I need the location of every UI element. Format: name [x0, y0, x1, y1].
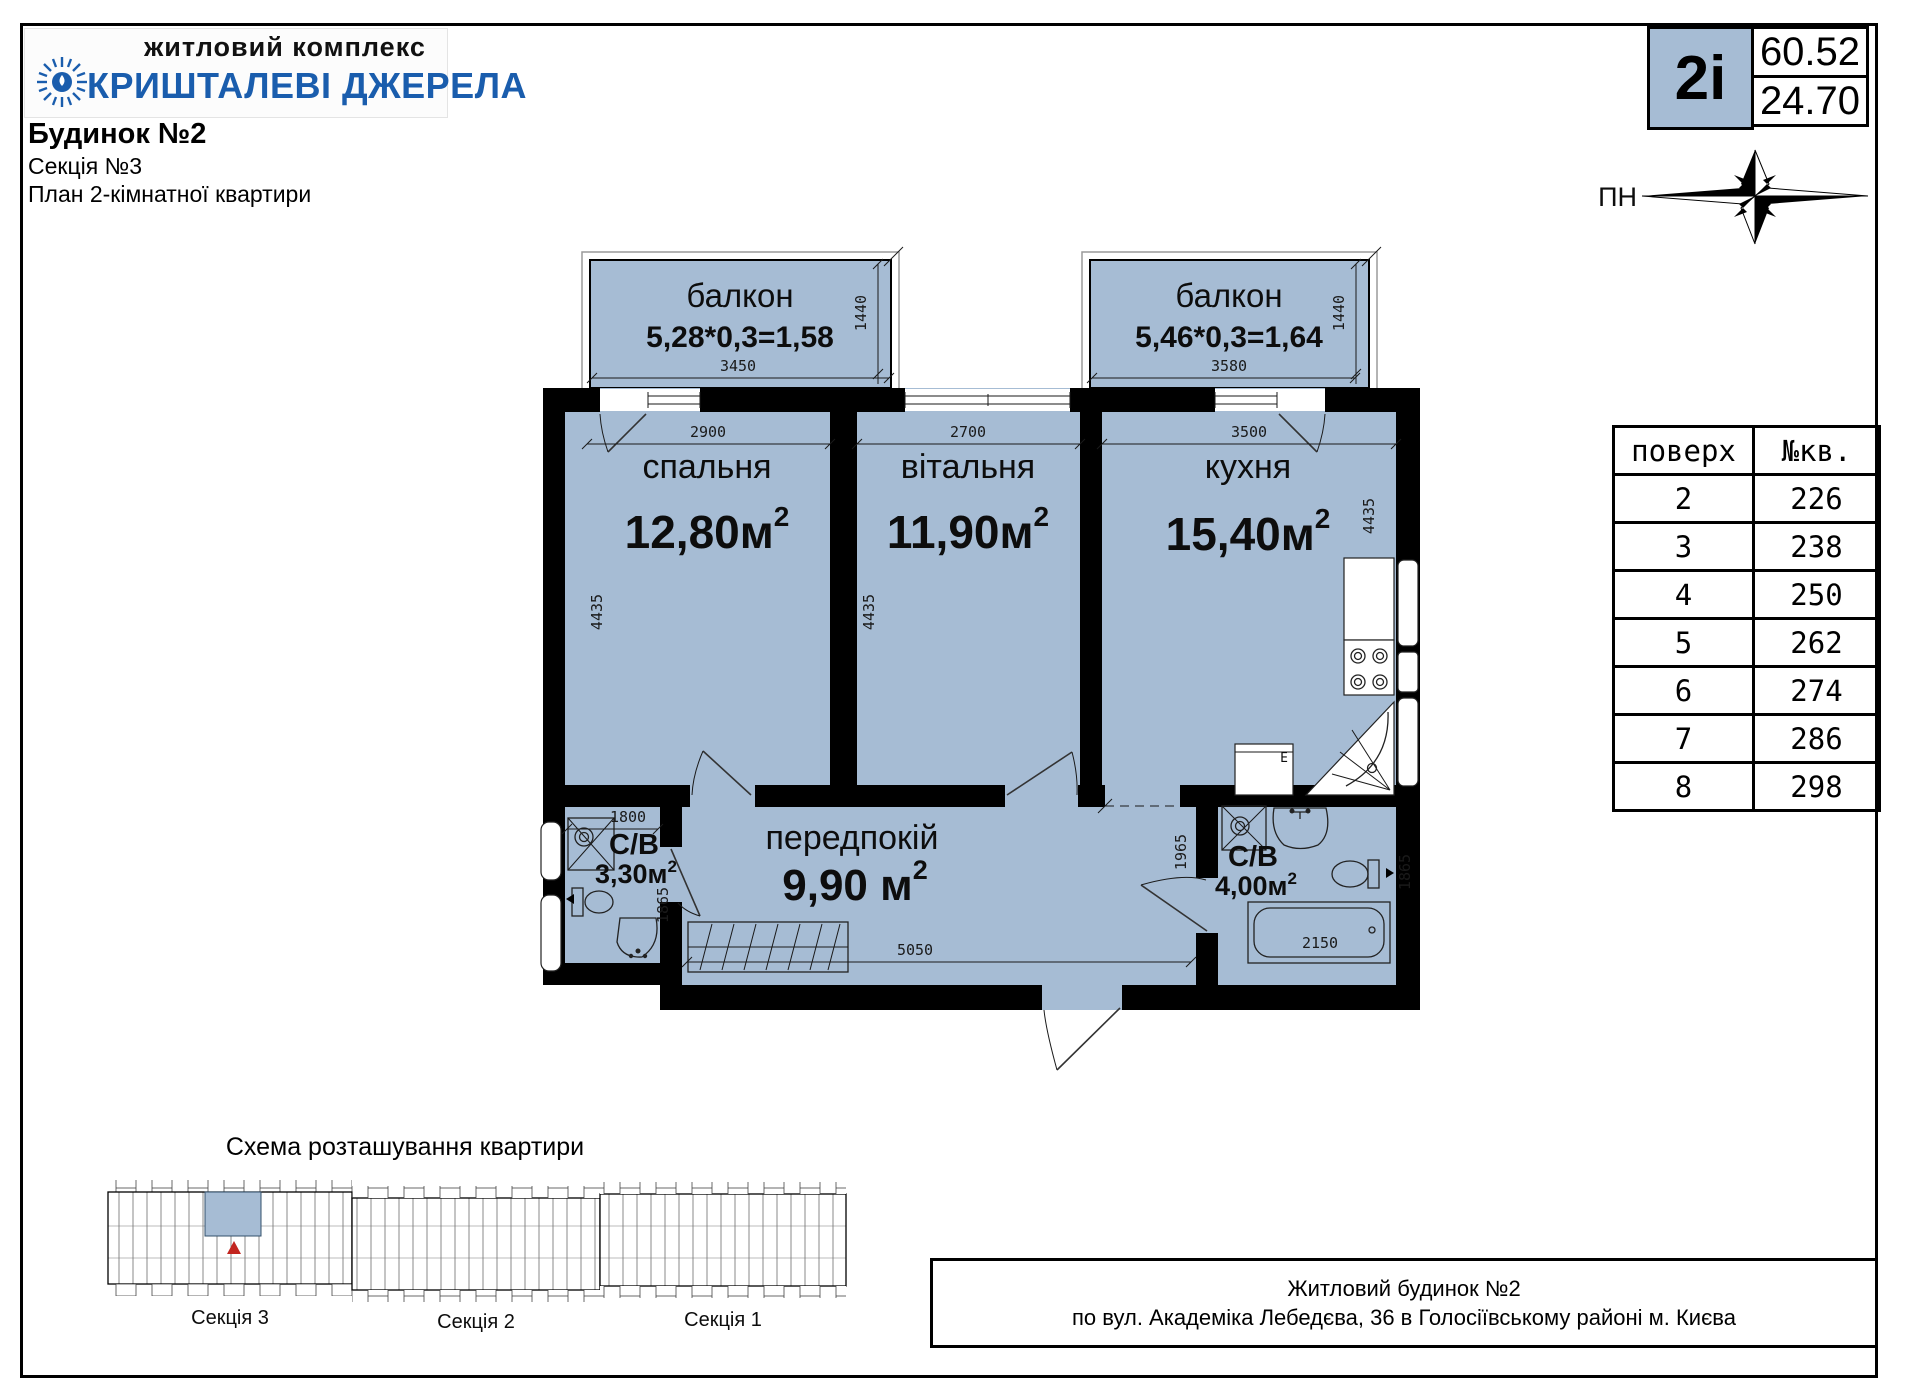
svg-text:балкон: балкон [686, 277, 793, 314]
svg-text:4435: 4435 [1360, 498, 1378, 534]
shaft-symbol [1398, 698, 1418, 786]
svg-text:12,80м2: 12,80м2 [625, 501, 790, 558]
svg-text:передпокій: передпокій [766, 819, 939, 857]
svg-text:2700: 2700 [950, 423, 986, 441]
svg-text:2150: 2150 [1302, 934, 1338, 952]
compass-rose-icon: ПН [1595, 138, 1885, 258]
svg-text:5050: 5050 [897, 941, 933, 959]
svg-text:4,00м2: 4,00м2 [1215, 869, 1297, 901]
developer-logo: житловий комплекс КРИШТАЛЕВІ ДЖЕРЕЛА [24, 28, 448, 118]
svg-text:спальня: спальня [642, 448, 771, 486]
svg-text:1800: 1800 [610, 808, 646, 826]
svg-text:3580: 3580 [1211, 357, 1247, 375]
section-3-label: Секція 3 [191, 1307, 269, 1329]
address-line1: Житловий будинок №2 [1287, 1274, 1520, 1303]
table-row: 8298 [1614, 763, 1880, 811]
svg-text:С/В: С/В [609, 829, 659, 861]
balcony-right: балкон 5,46*0,3=1,64 3580 1440 [1082, 247, 1381, 390]
sun-logo-icon [33, 53, 91, 111]
building-scheme: Секція 3 Секція 2 Секція 1 [95, 1168, 855, 1333]
svg-text:1440: 1440 [852, 295, 870, 331]
table-row: 2226 [1614, 475, 1880, 523]
svg-text:вітальня: вітальня [901, 448, 1035, 486]
svg-text:1440: 1440 [1330, 295, 1348, 331]
table-row: 5262 [1614, 619, 1880, 667]
highlighted-apartment [205, 1192, 261, 1236]
svg-text:2900: 2900 [690, 423, 726, 441]
logo-top-line: житловий комплекс [125, 32, 445, 63]
svg-text:3500: 3500 [1231, 423, 1267, 441]
svg-text:1965: 1965 [1172, 834, 1190, 870]
address-line2: по вул. Академіка Лебедєва, 36 в Голосії… [1072, 1303, 1736, 1332]
svg-text:E: E [1280, 751, 1288, 766]
svg-text:С/В: С/В [1228, 841, 1278, 873]
address-box: Житловий будинок №2 по вул. Академіка Ле… [930, 1258, 1878, 1348]
logo-complex-name: КРИШТАЛЕВІ ДЖЕРЕЛА [87, 65, 447, 107]
table-row: 6274 [1614, 667, 1880, 715]
svg-text:балкон: балкон [1175, 277, 1282, 314]
compass-north-label: ПН [1598, 182, 1637, 212]
svg-text:15,40м2: 15,40м2 [1166, 503, 1331, 560]
section-1-label: Секція 1 [684, 1309, 762, 1331]
svg-text:9,90 м2: 9,90 м2 [782, 855, 927, 910]
apartment-type: 2i [1647, 26, 1754, 130]
table-row: 7286 [1614, 715, 1880, 763]
svg-text:1865: 1865 [654, 887, 672, 923]
stove-symbol [1344, 640, 1394, 695]
svg-text:4435: 4435 [860, 594, 878, 630]
floors-col-header: поверх [1614, 427, 1754, 475]
plan-title: План 2-кімнатної квартири [28, 181, 311, 208]
shaft-symbol [1398, 560, 1418, 646]
kitchen-counter [1344, 558, 1394, 640]
appliance-symbol: E [1235, 744, 1293, 795]
living-area-value: 24.70 [1751, 75, 1869, 127]
radiator-symbol [541, 822, 561, 880]
svg-text:11,90м2: 11,90м2 [887, 501, 1049, 558]
svg-text:4435: 4435 [588, 594, 606, 630]
floors-table: поверх №кв. 2226 3238 4250 5262 6274 728… [1612, 425, 1881, 812]
svg-text:5,28*0,3=1,58: 5,28*0,3=1,58 [646, 321, 834, 354]
svg-text:3450: 3450 [720, 357, 756, 375]
shaft-symbol [1398, 652, 1418, 692]
table-row: 4250 [1614, 571, 1880, 619]
table-row: 3238 [1614, 523, 1880, 571]
total-area-value: 60.52 [1751, 26, 1869, 78]
building-title: Будинок №2 [28, 118, 206, 151]
balcony-left: балкон 5,28*0,3=1,58 3450 1440 [582, 247, 903, 390]
section-title: Секція №3 [28, 153, 142, 180]
svg-text:1865: 1865 [1396, 854, 1414, 890]
svg-text:5,46*0,3=1,64: 5,46*0,3=1,64 [1135, 321, 1323, 354]
apartment-badge: 2i 60.52 24.70 [1647, 26, 1869, 130]
floor-plan: балкон 5,28*0,3=1,58 3450 1440 балкон 5,… [440, 205, 1490, 1090]
section-2-label: Секція 2 [437, 1311, 515, 1333]
apt-col-header: №кв. [1754, 427, 1880, 475]
svg-text:кухня: кухня [1205, 448, 1291, 486]
svg-text:3,30м2: 3,30м2 [595, 857, 677, 889]
scheme-title: Схема розташування квартири [225, 1133, 585, 1162]
radiator-symbol [541, 895, 561, 971]
